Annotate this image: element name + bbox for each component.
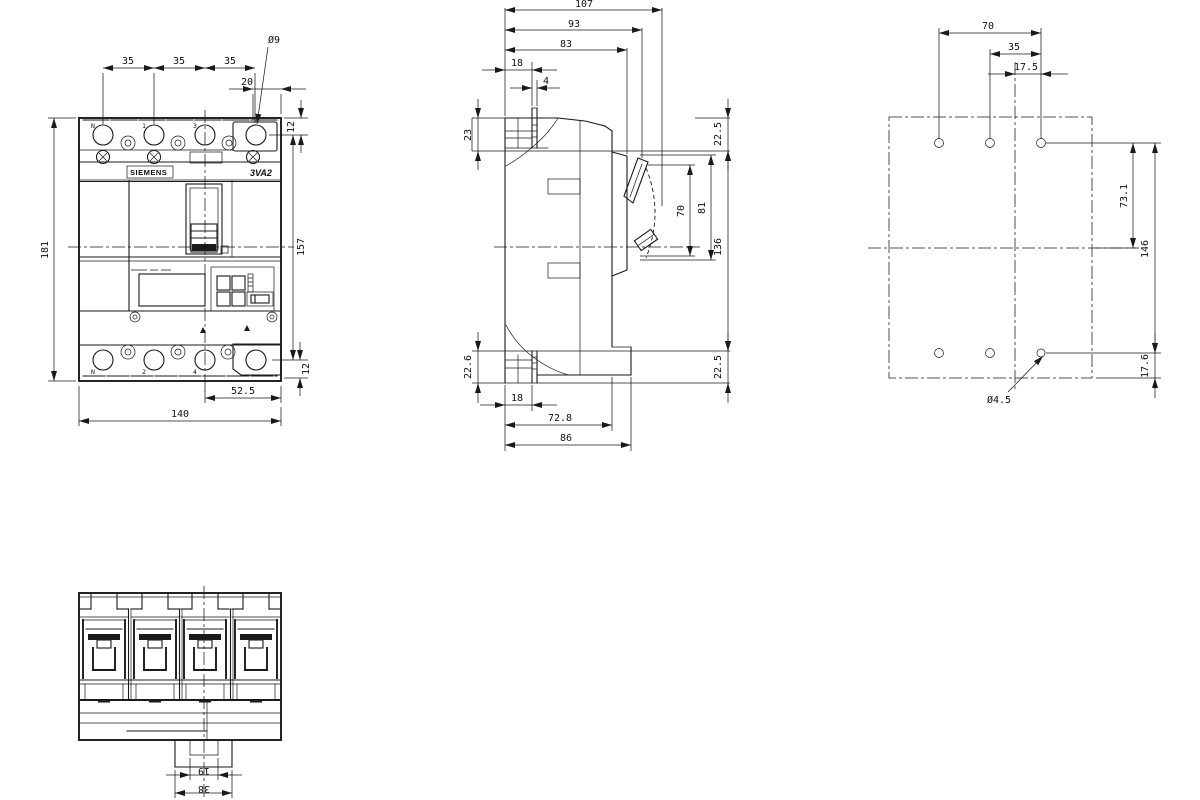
dim-mount-hole-half: 35: [1008, 42, 1020, 53]
mounting-view: 70 35 17.5 73.1 146 17.6 Ø4.5: [868, 21, 1161, 406]
dim-front-pitch-a: 35: [122, 56, 134, 67]
top-clamp: [505, 108, 548, 148]
keypad-frame: [211, 267, 274, 311]
dim-side-depth-max: 107: [575, 0, 593, 10]
side-view: 107 93 83 18 4 23 22.5 136: [463, 0, 730, 451]
bottom-terminal-holes: [93, 325, 281, 375]
handle-mid-position: [634, 229, 657, 250]
dim-side-foot-depth: 72.8: [548, 413, 572, 424]
dim-front-pitch-b: 35: [173, 56, 185, 67]
display-window: [139, 274, 205, 306]
dim-bottom-notch-width: 19: [198, 765, 210, 776]
keypad-button: [232, 276, 245, 290]
panel-screw: [267, 312, 277, 322]
dim-front-top-offset: 12: [286, 121, 297, 133]
neutral-terminal-box-top: [233, 122, 277, 151]
dim-bottom-tab-width: 38: [198, 783, 210, 794]
dim-front-terminal-span: 157: [296, 238, 307, 256]
dim-side-foot-back: 18: [511, 393, 523, 404]
handle-escutcheon: [612, 152, 658, 276]
terminal-label-bottom-3: 4: [193, 368, 197, 376]
dim-side-handle-b: 81: [697, 202, 708, 214]
keypad-button: [232, 292, 245, 306]
dim-side-bottom-front: 22.5: [713, 355, 724, 379]
mount-dimensions: 70 35 17.5 73.1 146 17.6 Ø4.5: [939, 21, 1161, 406]
terminal-label-top-1: N: [91, 122, 95, 130]
terminal-label-top-3: 3: [193, 122, 197, 130]
terminal-label-bottom-1: N: [91, 368, 95, 376]
dim-front-box-span: 52.5: [231, 386, 255, 397]
dim-side-top-back: 23: [463, 129, 474, 141]
dim-mount-hole-span: 70: [982, 21, 994, 32]
breaker-phantom-outline: [889, 117, 1092, 378]
din-rail-tab: [175, 740, 232, 767]
keypad-button: [217, 276, 230, 290]
model-label: 3VA2: [250, 168, 272, 178]
dim-side-top-front: 22.5: [713, 122, 724, 146]
dim-mount-hole-dia: Ø4.5: [987, 394, 1011, 406]
technical-drawing: N 1 3 SIEMENS 3VA2: [0, 0, 1200, 800]
dim-front-hole-dia: Ø9: [268, 34, 280, 46]
brand-label: SIEMENS: [130, 168, 167, 177]
toggle-handle: [186, 184, 228, 254]
bottom-view: 19 38: [79, 586, 281, 798]
dim-side-body-span: 136: [713, 238, 724, 256]
dim-side-bottom-back: 22.6: [463, 355, 474, 379]
technical-drawing-page: N 1 3 SIEMENS 3VA2: [0, 0, 1200, 800]
led-column: [248, 274, 253, 292]
dim-side-depth-escutcheon: 83: [560, 39, 572, 50]
dim-front-bottom-offset: 12: [301, 363, 312, 375]
dim-side-handle-a: 70: [676, 205, 687, 217]
test-connector: [247, 292, 273, 306]
dim-side-slot-width: 4: [543, 76, 549, 87]
bottom-clamp: [505, 351, 537, 383]
dim-side-depth-handle: 93: [568, 19, 580, 30]
dim-mount-upper-span: 73.1: [1119, 184, 1130, 208]
dim-mount-lower-offset: 17.6: [1140, 354, 1151, 378]
front-dimensions: 35 35 35 20 Ø9 12 157: [40, 34, 312, 426]
interior-notch: [548, 179, 580, 194]
top-terminal-holes: [93, 122, 277, 151]
dim-side-base-depth: 86: [560, 433, 572, 444]
dim-mount-vertical-span: 146: [1140, 240, 1151, 258]
panel-screw: [130, 312, 140, 322]
terminal-label-top-2: 1: [142, 122, 146, 130]
dim-front-hole-edge: 20: [241, 77, 253, 88]
front-view: N 1 3 SIEMENS 3VA2: [40, 34, 312, 426]
control-panel: [130, 267, 277, 322]
dim-front-overall-width: 140: [171, 409, 189, 420]
dim-front-overall-height: 181: [40, 241, 51, 259]
torque-mark: [244, 325, 250, 331]
dim-front-pitch-c: 35: [224, 56, 236, 67]
dim-side-clamp-depth: 18: [511, 58, 523, 69]
keypad-button: [217, 292, 230, 306]
interior-notch: [548, 263, 580, 278]
terminal-label-bottom-2: 2: [142, 368, 146, 376]
dim-mount-hole-quarter: 17.5: [1014, 62, 1038, 73]
